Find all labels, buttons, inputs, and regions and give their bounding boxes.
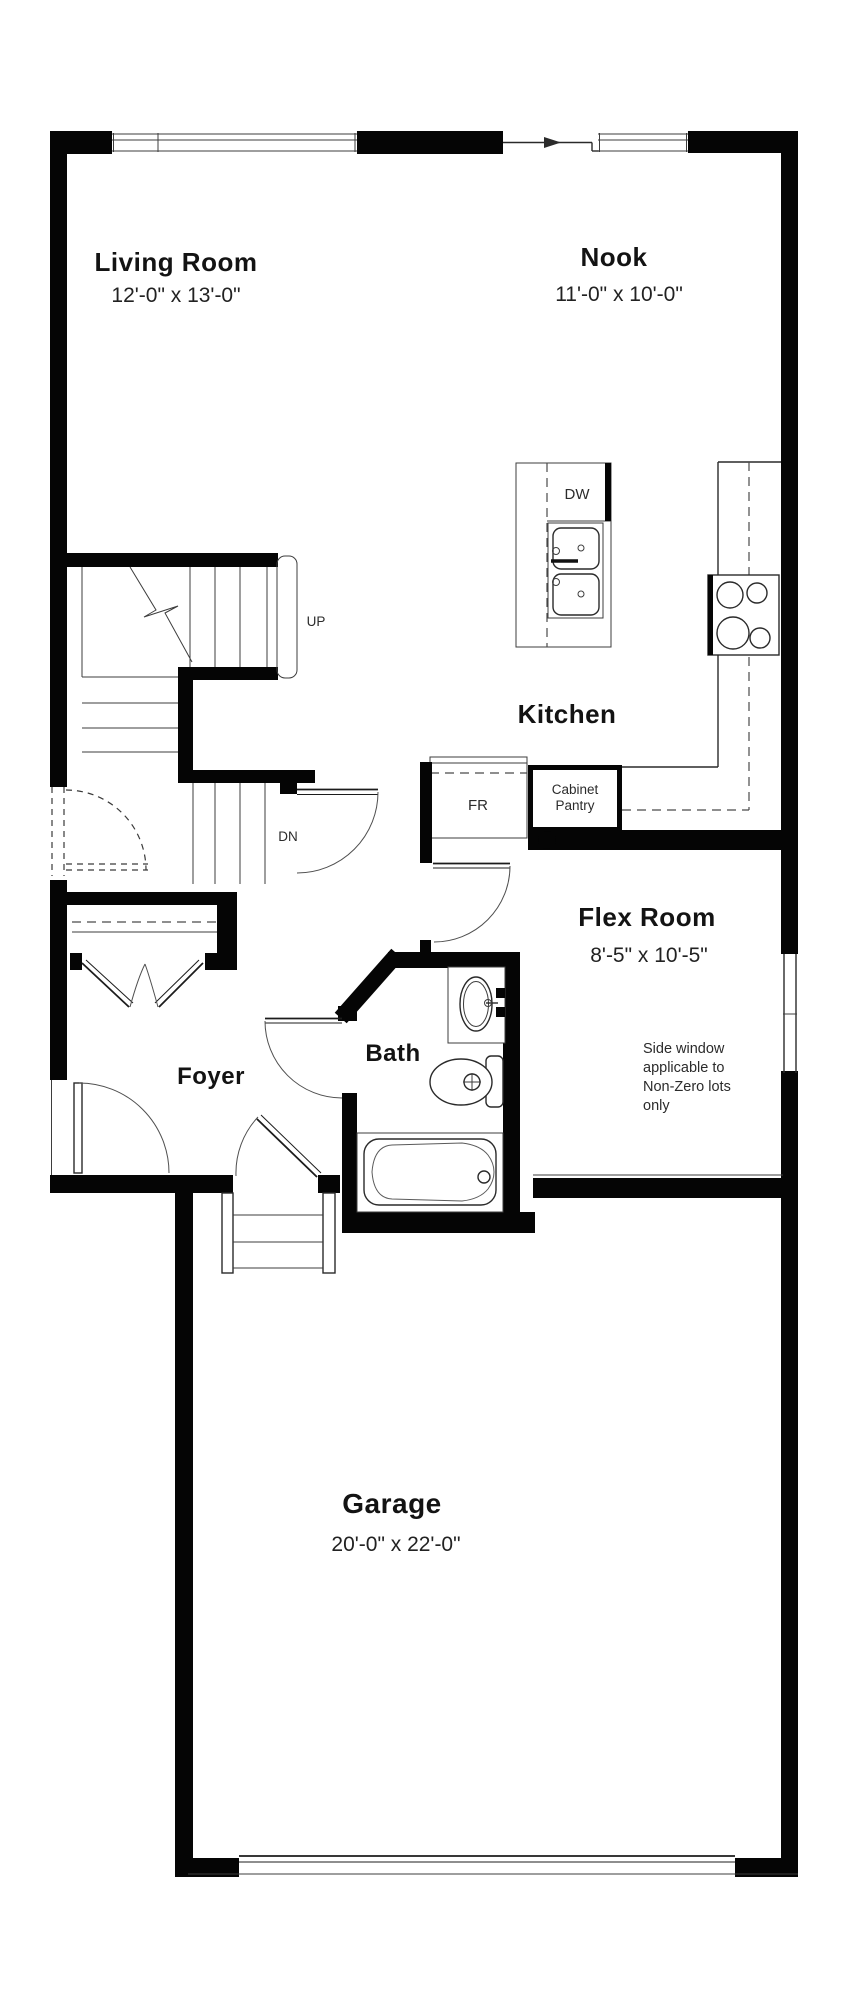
kitchen-sink xyxy=(548,523,603,618)
nook-dims: 11'-0" x 10'-0" xyxy=(555,283,683,306)
fridge-wall xyxy=(420,762,432,863)
living-room-label: Living Room xyxy=(95,247,258,277)
garage-door xyxy=(188,1856,798,1874)
stair-down-label: DN xyxy=(278,829,298,844)
foyer-closet xyxy=(50,892,237,1007)
bath-label: Bath xyxy=(365,1040,420,1067)
garage-entry-door xyxy=(236,1115,321,1177)
svg-text:Non-Zero lots: Non-Zero lots xyxy=(643,1079,731,1095)
faucet-handle xyxy=(496,988,505,998)
floor-plan: UP DN DW xyxy=(0,0,850,2000)
garage-label: Garage xyxy=(342,1488,442,1519)
svg-text:only: only xyxy=(643,1098,670,1114)
dishwasher-label: DW xyxy=(565,486,591,503)
front-door xyxy=(52,1080,170,1175)
kitchen-label: Kitchen xyxy=(518,699,617,729)
flex-side-window xyxy=(781,948,798,1077)
living-room-dims: 12'-0" x 13'-0" xyxy=(111,284,240,307)
slider-arrow-icon xyxy=(544,137,561,148)
flex-room-walls xyxy=(528,830,783,1198)
dishwasher-front xyxy=(605,463,611,521)
pantry-label-line1: Cabinet xyxy=(552,782,599,797)
basement-door xyxy=(297,790,378,874)
understair-door xyxy=(52,787,148,876)
bathtub xyxy=(357,1133,503,1212)
faucet-handle xyxy=(496,1007,505,1017)
toilet xyxy=(430,1056,503,1107)
stair-break-line xyxy=(130,567,192,662)
staircase: UP DN xyxy=(67,553,325,884)
svg-text:Side window: Side window xyxy=(643,1041,725,1057)
svg-text:applicable to: applicable to xyxy=(643,1060,724,1076)
garage-dims: 20'-0" x 22'-0" xyxy=(331,1533,460,1556)
front-window-left xyxy=(112,133,357,152)
patio-slider-opening xyxy=(503,137,599,151)
fridge: FR xyxy=(430,757,527,838)
stove xyxy=(708,575,779,655)
stair-handrail xyxy=(277,556,297,678)
stair-up-label: UP xyxy=(307,614,326,629)
foyer-label: Foyer xyxy=(177,1063,245,1090)
fridge-label: FR xyxy=(468,797,488,814)
flex-room-label: Flex Room xyxy=(578,902,715,932)
bath-vanity xyxy=(448,967,505,1043)
flex-room-dims: 8'-5" x 10'-5" xyxy=(590,944,707,967)
cabinet-pantry: Cabinet Pantry xyxy=(531,768,620,830)
flex-room-door xyxy=(433,864,510,943)
nook-window xyxy=(598,133,688,152)
side-window-note: Side window applicable to Non-Zero lots … xyxy=(643,1041,731,1114)
nook-label: Nook xyxy=(581,242,648,272)
bath-door xyxy=(265,1019,342,1099)
pantry-label-line2: Pantry xyxy=(555,798,594,813)
garage-steps xyxy=(222,1193,335,1273)
